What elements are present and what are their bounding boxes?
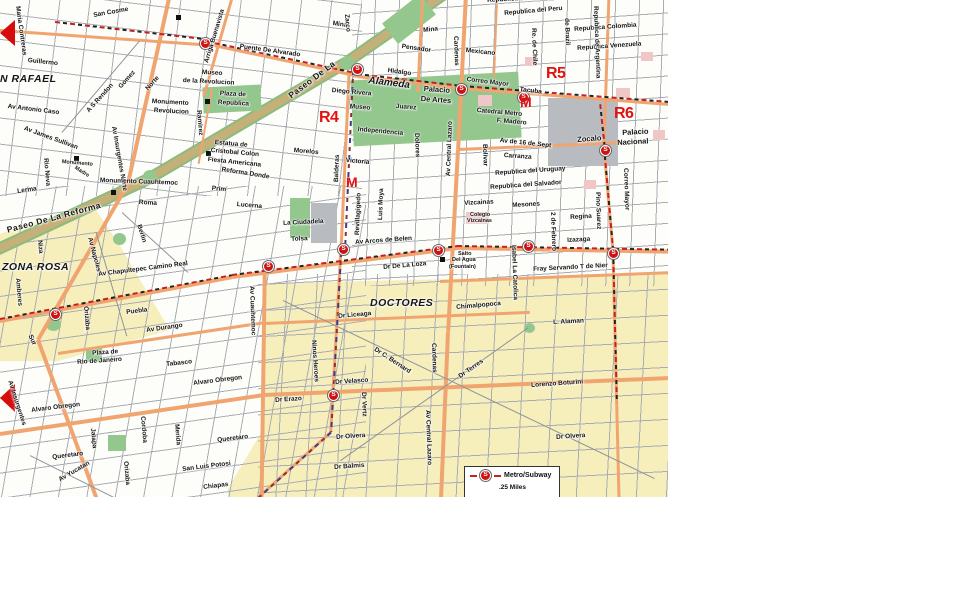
map-label: Del Agua	[452, 258, 476, 264]
route-marker: R5	[546, 66, 565, 82]
map-label: Alvaro Obregon	[193, 375, 243, 387]
map-label: (Fountain)	[449, 265, 476, 271]
map-label: Av Antonio Caso	[7, 104, 59, 117]
map-label: Ramirez	[195, 110, 204, 136]
building-block	[478, 95, 492, 106]
map-label: Balderas	[334, 155, 341, 183]
map-label: Mesones	[512, 202, 540, 210]
map-label: Niza	[36, 240, 44, 254]
map-label: Rio Neva	[42, 158, 51, 186]
map-label: Dolores	[413, 133, 420, 157]
map-label: Gomez	[118, 70, 137, 90]
map-label: Luis Moya	[378, 188, 386, 220]
map-label: Vizcainas	[464, 199, 494, 207]
map-label: Reforma Donde	[221, 167, 270, 181]
landmark-square	[205, 99, 210, 104]
map-label: Vizcainas	[467, 219, 492, 225]
page: { "map": { "width": 668, "height": 497, …	[0, 0, 960, 605]
metro-station-icon: S	[456, 84, 467, 95]
map-label: Lerma	[17, 186, 37, 195]
map-label: Pensador	[401, 44, 431, 55]
building-block	[653, 130, 665, 140]
map-label: Isabel La Catolica	[510, 245, 518, 300]
map-label: Fray Servando T de Nier	[533, 263, 608, 273]
map-label: Carranza	[504, 153, 532, 161]
map-label: Correo Mayor	[622, 168, 630, 210]
metro-station-icon: S	[338, 244, 349, 255]
landmark-square	[176, 15, 181, 20]
city-map: SSSSSSSSSSSSSan CosmeMaria ContrerasGuil…	[0, 0, 668, 497]
map-label: Av Central Lazaro	[424, 410, 432, 465]
map-label: DOCTORES	[370, 298, 433, 309]
map-label: de la Revolucion	[183, 78, 235, 87]
road	[493, 0, 498, 78]
map-label: Roma	[139, 200, 157, 207]
map-label: Zarco	[343, 14, 351, 32]
map-label: Av Arcos de Belen	[355, 236, 412, 246]
metro-station-icon: S	[480, 470, 491, 481]
map-label: N RAFAEL	[0, 74, 57, 85]
map-label: Norte	[145, 75, 161, 92]
map-label: Revillagigedo	[355, 193, 363, 235]
map-label: Orizaba	[82, 306, 91, 330]
map-label: Berlin	[135, 224, 147, 244]
map-label: Lucerna	[236, 202, 262, 211]
metro-station-icon: S	[50, 309, 61, 320]
map-label: Republica del Peru	[504, 6, 563, 18]
map-label: Bolivar	[481, 144, 488, 166]
map-label: Av Central Lazaro	[446, 121, 454, 176]
map-label: Merida	[173, 424, 181, 445]
legend-scale-label: .25 Miles	[470, 484, 555, 491]
map-label: Av James Sullivan	[23, 126, 79, 152]
map-label: Revolucion	[154, 108, 189, 116]
street	[62, 41, 141, 133]
map-label: Monumento	[152, 99, 189, 107]
map-label: Queretaro	[217, 434, 249, 444]
map-label: Palacio	[423, 85, 450, 94]
map-label: Cordoba	[139, 416, 148, 443]
map-label: Palacio	[622, 128, 649, 137]
map-label: Republica del Salvador	[490, 180, 562, 191]
map-label: Chiapas	[203, 482, 229, 492]
road	[0, 393, 264, 436]
map-label: Morelos	[293, 148, 318, 157]
map-label: 2 de Febrero	[549, 212, 557, 251]
building-block	[641, 52, 653, 61]
building-block	[584, 180, 596, 189]
map-label: San Luis Potosi	[182, 461, 231, 473]
route-marker: R6	[614, 106, 633, 122]
map-label: Juarez	[396, 104, 417, 112]
map-label: Mexicano	[465, 48, 495, 58]
map-label: Republica del Uruguay	[495, 166, 566, 177]
route-marker: M	[520, 95, 532, 109]
building-block	[548, 98, 618, 166]
map-label: San Cosme	[93, 7, 129, 20]
map-label: Amberes	[14, 278, 23, 306]
map-label: De Artes	[420, 95, 451, 105]
map-label: de Brazil	[563, 18, 570, 45]
metro-station-icon: S	[608, 248, 619, 259]
map-label: Monumento Cuauhtemoc	[100, 178, 178, 187]
metro-station-icon: S	[433, 245, 444, 256]
park-area	[113, 233, 126, 245]
map-label: Queretaro	[52, 451, 84, 461]
map-label: Madre	[73, 166, 90, 179]
park-area	[108, 435, 126, 451]
map-label: Regina	[570, 214, 592, 222]
metro-station-icon: S	[328, 390, 339, 401]
map-label: Guillermo	[27, 58, 58, 68]
map-label: ZONA ROSA	[2, 262, 69, 273]
metro-line-dash-icon	[470, 475, 477, 477]
map-label: Nacional	[617, 137, 649, 146]
landmark-square	[111, 190, 116, 195]
metro-station-icon: S	[352, 64, 363, 75]
map-label: Av Cuauhtemoc	[248, 286, 256, 335]
map-label: Alvaro Obregon	[31, 402, 81, 414]
direction-arrow-icon	[0, 20, 15, 46]
map-label: Tabasco	[166, 359, 192, 368]
legend-metro-label: Metro/Subway	[504, 472, 551, 479]
metro-station-icon: S	[523, 241, 534, 252]
map-label: Plaza de	[220, 91, 246, 99]
map-label: Republica de Argentina	[592, 6, 601, 79]
map-label: Jalapa	[89, 428, 97, 449]
map-label: Izazaga	[567, 237, 590, 245]
map-label: Zocalo	[577, 134, 602, 143]
map-label: Tolsa	[291, 236, 308, 243]
metro-line-dash-icon	[494, 475, 501, 477]
metro-station-icon: S	[600, 145, 611, 156]
map-label: Cardenas	[430, 343, 438, 373]
map-label: Dr De La Loza	[383, 261, 427, 271]
map-label: Re. de Chile	[530, 28, 538, 65]
map-legend: S Metro/Subway .25 Miles	[464, 466, 560, 497]
map-label: Mina	[423, 26, 438, 34]
road	[0, 29, 204, 46]
map-label: Pino Suarez	[594, 192, 602, 229]
map-label: Dr Vertz	[360, 392, 367, 417]
map-label: Orizaba	[122, 461, 131, 485]
map-label: Republica de Honduras	[487, 0, 560, 4]
map-label: Republica Venezuela	[577, 42, 642, 53]
metro-station-icon: S	[263, 261, 274, 272]
map-label: Rio de Janeiro	[77, 357, 122, 367]
landmark-square	[440, 257, 445, 262]
route-marker: M	[346, 175, 358, 189]
street	[30, 455, 120, 497]
route-marker: R4	[319, 110, 338, 126]
map-label: Prim	[211, 186, 226, 194]
map-label: Museo	[202, 70, 223, 78]
map-label: Cardenas	[452, 36, 460, 66]
